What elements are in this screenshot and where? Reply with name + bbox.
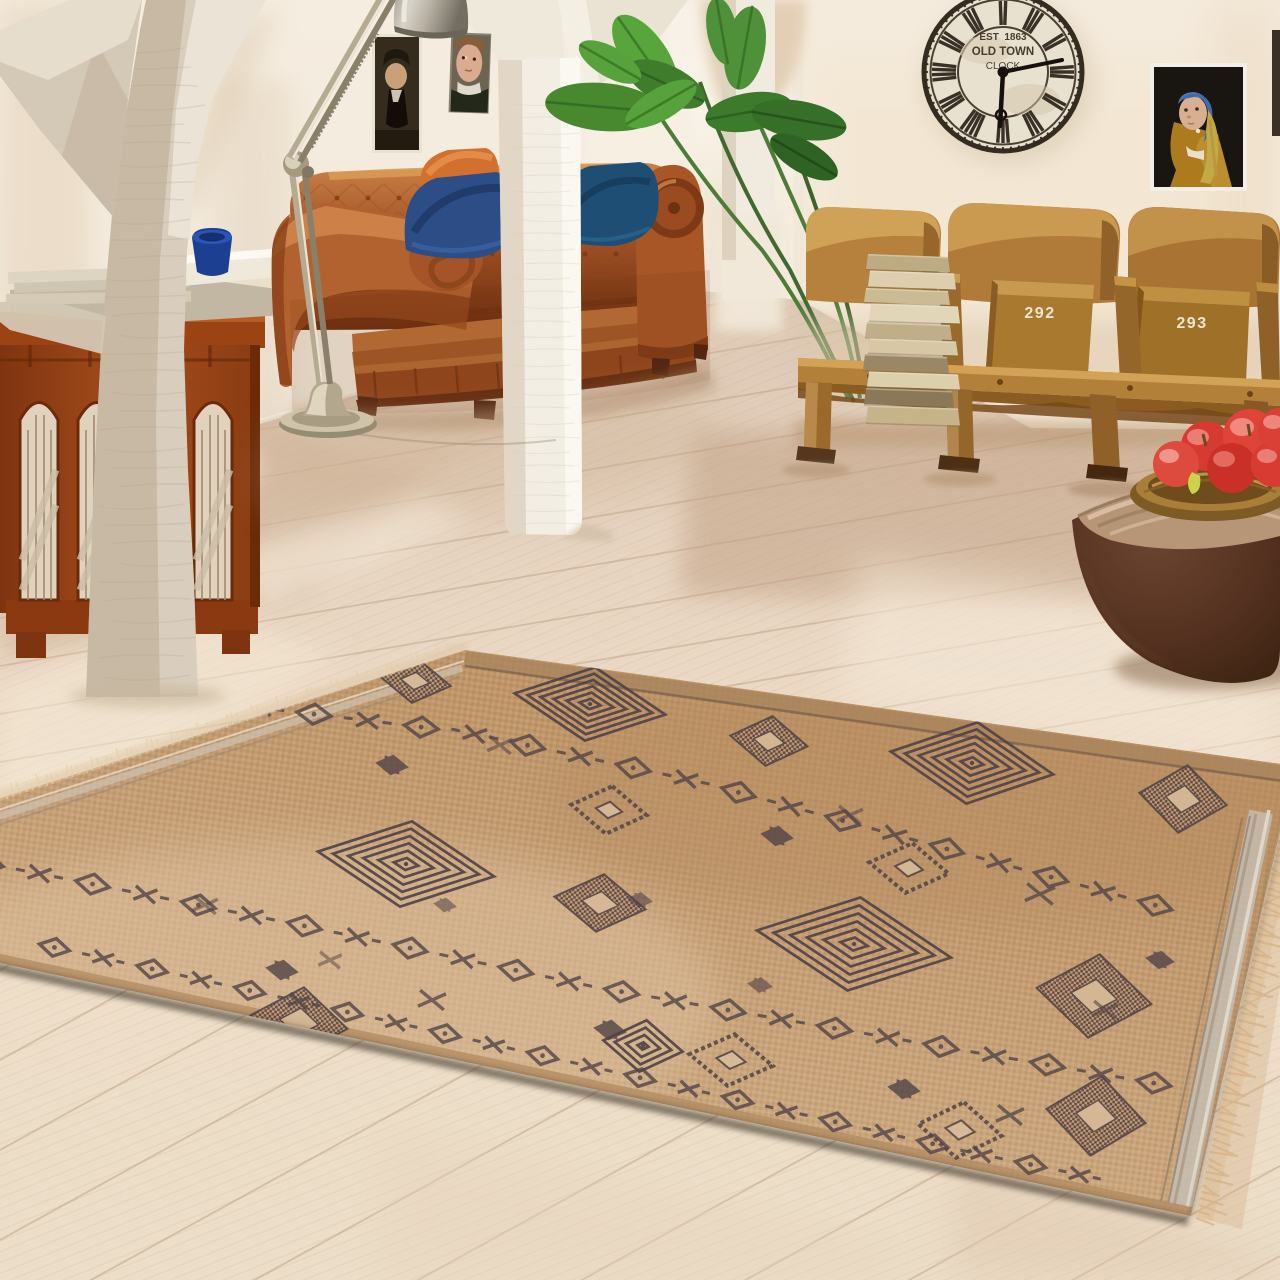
svg-text:292: 292 xyxy=(1024,305,1055,322)
svg-text:OLD TOWN: OLD TOWN xyxy=(972,46,1034,58)
svg-text:EST 1863: EST 1863 xyxy=(979,32,1027,43)
svg-text:293: 293 xyxy=(1176,315,1207,332)
